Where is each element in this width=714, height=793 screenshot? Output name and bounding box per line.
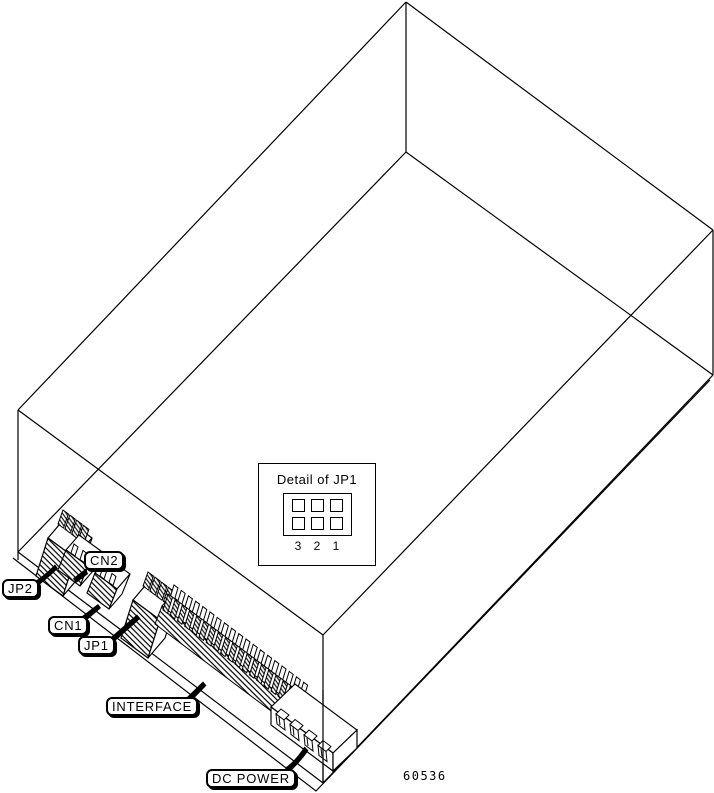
figure-canvas: JP2 CN2 CN1 JP1 INTERFACE DC POWER Detai…	[0, 0, 714, 793]
jp1-pin-numbers: 3 2 1	[259, 539, 375, 553]
jp1-jumper-block	[283, 493, 352, 536]
callout-interface: INTERFACE	[106, 697, 198, 716]
jumper-pin	[311, 499, 324, 512]
callout-jp1: JP1	[78, 636, 115, 655]
pin-number-3: 3	[292, 539, 305, 553]
jumper-pin	[311, 517, 324, 530]
chassis-wireframe	[13, 2, 713, 791]
callout-cn2: CN2	[84, 551, 124, 570]
pin-number-2: 2	[311, 539, 324, 553]
callout-cn1: CN1	[48, 616, 88, 635]
jp1-detail-inset: Detail of JP1 3 2 1	[258, 463, 376, 566]
callout-dc-power: DC POWER	[206, 769, 296, 788]
jumper-pin	[292, 517, 305, 530]
figure-part-number: 60536	[403, 769, 447, 783]
jumper-pin	[330, 499, 343, 512]
callout-jp2: JP2	[2, 579, 39, 598]
pin-number-1: 1	[330, 539, 343, 553]
jp1-detail-title: Detail of JP1	[259, 472, 375, 487]
jumper-pin	[330, 517, 343, 530]
jumper-pin	[292, 499, 305, 512]
jp1-jumper-grid	[292, 499, 343, 530]
drive-line-art	[0, 0, 714, 793]
